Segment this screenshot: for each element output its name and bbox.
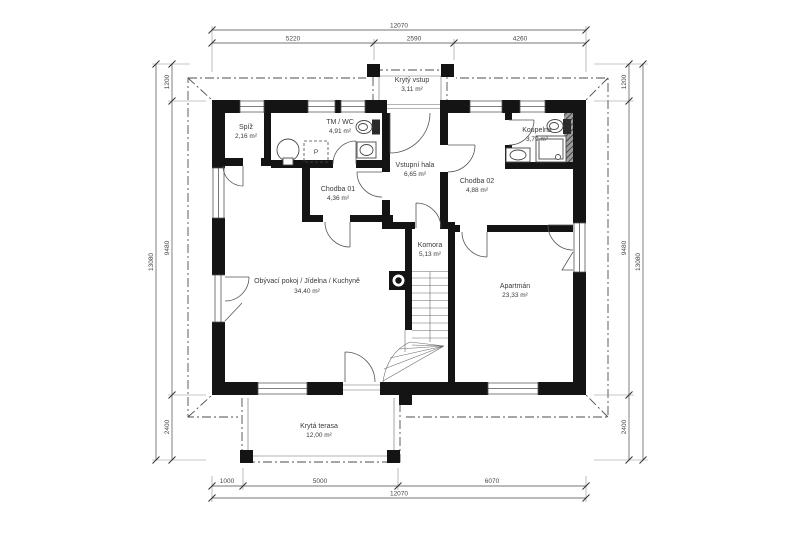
washer-icon: P	[304, 141, 328, 162]
sink-icon	[506, 148, 530, 162]
toilet-icon	[356, 120, 380, 135]
dim-bottom-seg3: 6070	[485, 478, 500, 485]
living-exterior-door-leaf	[225, 303, 242, 321]
room-area-apartman: 23,33 m²	[502, 292, 528, 299]
terrace-door	[345, 352, 375, 382]
dim-left-seg3: 2400	[164, 419, 171, 434]
washer-label: P	[314, 149, 318, 156]
room-name-koupelna: Koupelna	[522, 127, 552, 134]
dim-right-seg1: 1200	[621, 74, 628, 89]
dim-top-seg1: 5220	[286, 36, 301, 43]
dim-bottom-seg1: 1000	[220, 478, 235, 485]
room-area-tmwc: 4,91 m²	[329, 128, 352, 135]
room-name-terasa: Krytá terasa	[300, 423, 338, 430]
hall-chodba02-door	[448, 145, 475, 172]
dim-top-seg2: 2590	[407, 36, 422, 43]
apartment-door-fixed-panel	[562, 252, 573, 270]
porch-column	[367, 64, 380, 77]
floor-plan-page: P	[0, 0, 800, 533]
sink-icon	[357, 142, 376, 158]
room-area-obyvaci: 34,40 m²	[294, 288, 320, 295]
room-name-chodba01: Chodba 01	[321, 186, 355, 193]
living-exterior-door	[225, 277, 249, 301]
room-area-spiz: 2,16 m²	[235, 133, 258, 140]
room-area-chodba01: 4,36 m²	[327, 195, 350, 202]
room-area-terasa: 12,00 m²	[306, 432, 332, 439]
room-area-komora: 5,13 m²	[419, 251, 442, 258]
room-name-obyvaci: Obývací pokoj / Jídelna / Kuchyně	[254, 278, 360, 285]
room-area-chodba02: 4,88 m²	[466, 187, 489, 194]
terrace	[238, 395, 412, 466]
room-name-vstupni-hala: Vstupní hala	[396, 162, 435, 169]
apartment-door	[462, 232, 487, 257]
room-name-spiz: Spíž	[239, 124, 254, 131]
floor-plan-canvas: P	[0, 0, 800, 533]
room-name-tmwc: TM / WC	[326, 119, 354, 126]
dim-bottom-overall: 12070	[390, 491, 408, 498]
dim-right-overall: 13080	[635, 253, 642, 271]
dim-left-seg1: 1200	[164, 74, 171, 89]
terrace-column	[387, 450, 400, 463]
chodba01-living-door	[325, 222, 350, 247]
entrance-door	[390, 113, 430, 153]
room-name-kryty-vstup: Krytý vstup	[395, 77, 430, 84]
terrace-column	[240, 450, 253, 463]
room-area-kryty-vstup: 3,11 m²	[401, 86, 423, 93]
room-name-chodba02: Chodba 02	[460, 178, 494, 185]
komora-door	[416, 203, 441, 228]
room-area-vstupni-hala: 6,65 m²	[404, 171, 427, 178]
dim-top-overall: 12070	[390, 23, 408, 30]
room-name-komora: Komora	[418, 242, 443, 249]
hall-chodba01-door	[357, 172, 382, 197]
pantry-door	[223, 166, 243, 186]
dim-top-seg3: 4260	[513, 36, 528, 43]
stove-icon	[389, 271, 408, 290]
terrace-pillar	[399, 395, 412, 405]
dim-right-seg2: 9480	[621, 240, 628, 255]
dim-left-overall: 13080	[148, 253, 155, 271]
dim-right-seg3: 2400	[621, 419, 628, 434]
tmwc-door	[333, 141, 356, 164]
room-name-apartman: Apartmán	[500, 283, 530, 290]
room-area-koupelna: 3,79 m²	[526, 136, 549, 143]
dim-bottom-seg2: 5000	[313, 478, 328, 485]
doors	[223, 105, 573, 391]
porch-column	[441, 64, 454, 77]
dim-left-seg2: 9480	[164, 240, 171, 255]
